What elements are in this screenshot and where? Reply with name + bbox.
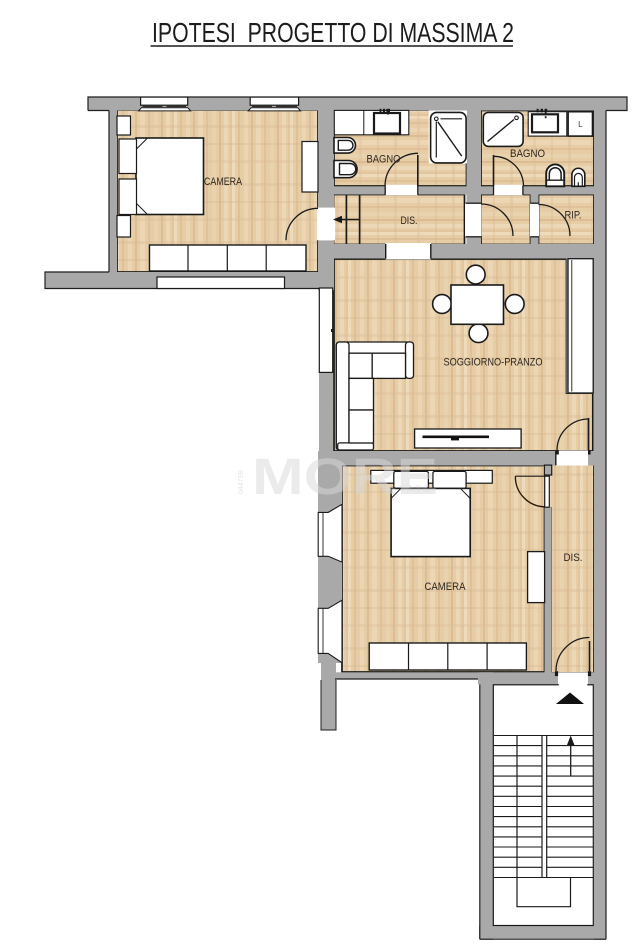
svg-text:CAMERA: CAMERA [425, 581, 467, 593]
svg-text:DIS.: DIS. [401, 215, 418, 227]
svg-text:IPOTESI PROGETTO DI MASSIMA 2: IPOTESI PROGETTO DI MASSIMA 2 [152, 17, 514, 48]
svg-text:MORE: MORE [252, 448, 438, 505]
svg-text:L: L [578, 120, 583, 129]
svg-text:REAL ESTATE: REAL ESTATE [341, 484, 433, 494]
svg-text:BAGNO: BAGNO [367, 154, 401, 166]
svg-text:RIP.: RIP. [565, 210, 582, 222]
svg-text:04479B: 04479B [238, 470, 245, 494]
svg-text:CAMERA: CAMERA [204, 176, 243, 188]
svg-text:SOGGIORNO-PRANZO: SOGGIORNO-PRANZO [444, 357, 543, 369]
svg-text:BAGNO: BAGNO [510, 148, 545, 160]
svg-text:DIS.: DIS. [564, 552, 583, 564]
